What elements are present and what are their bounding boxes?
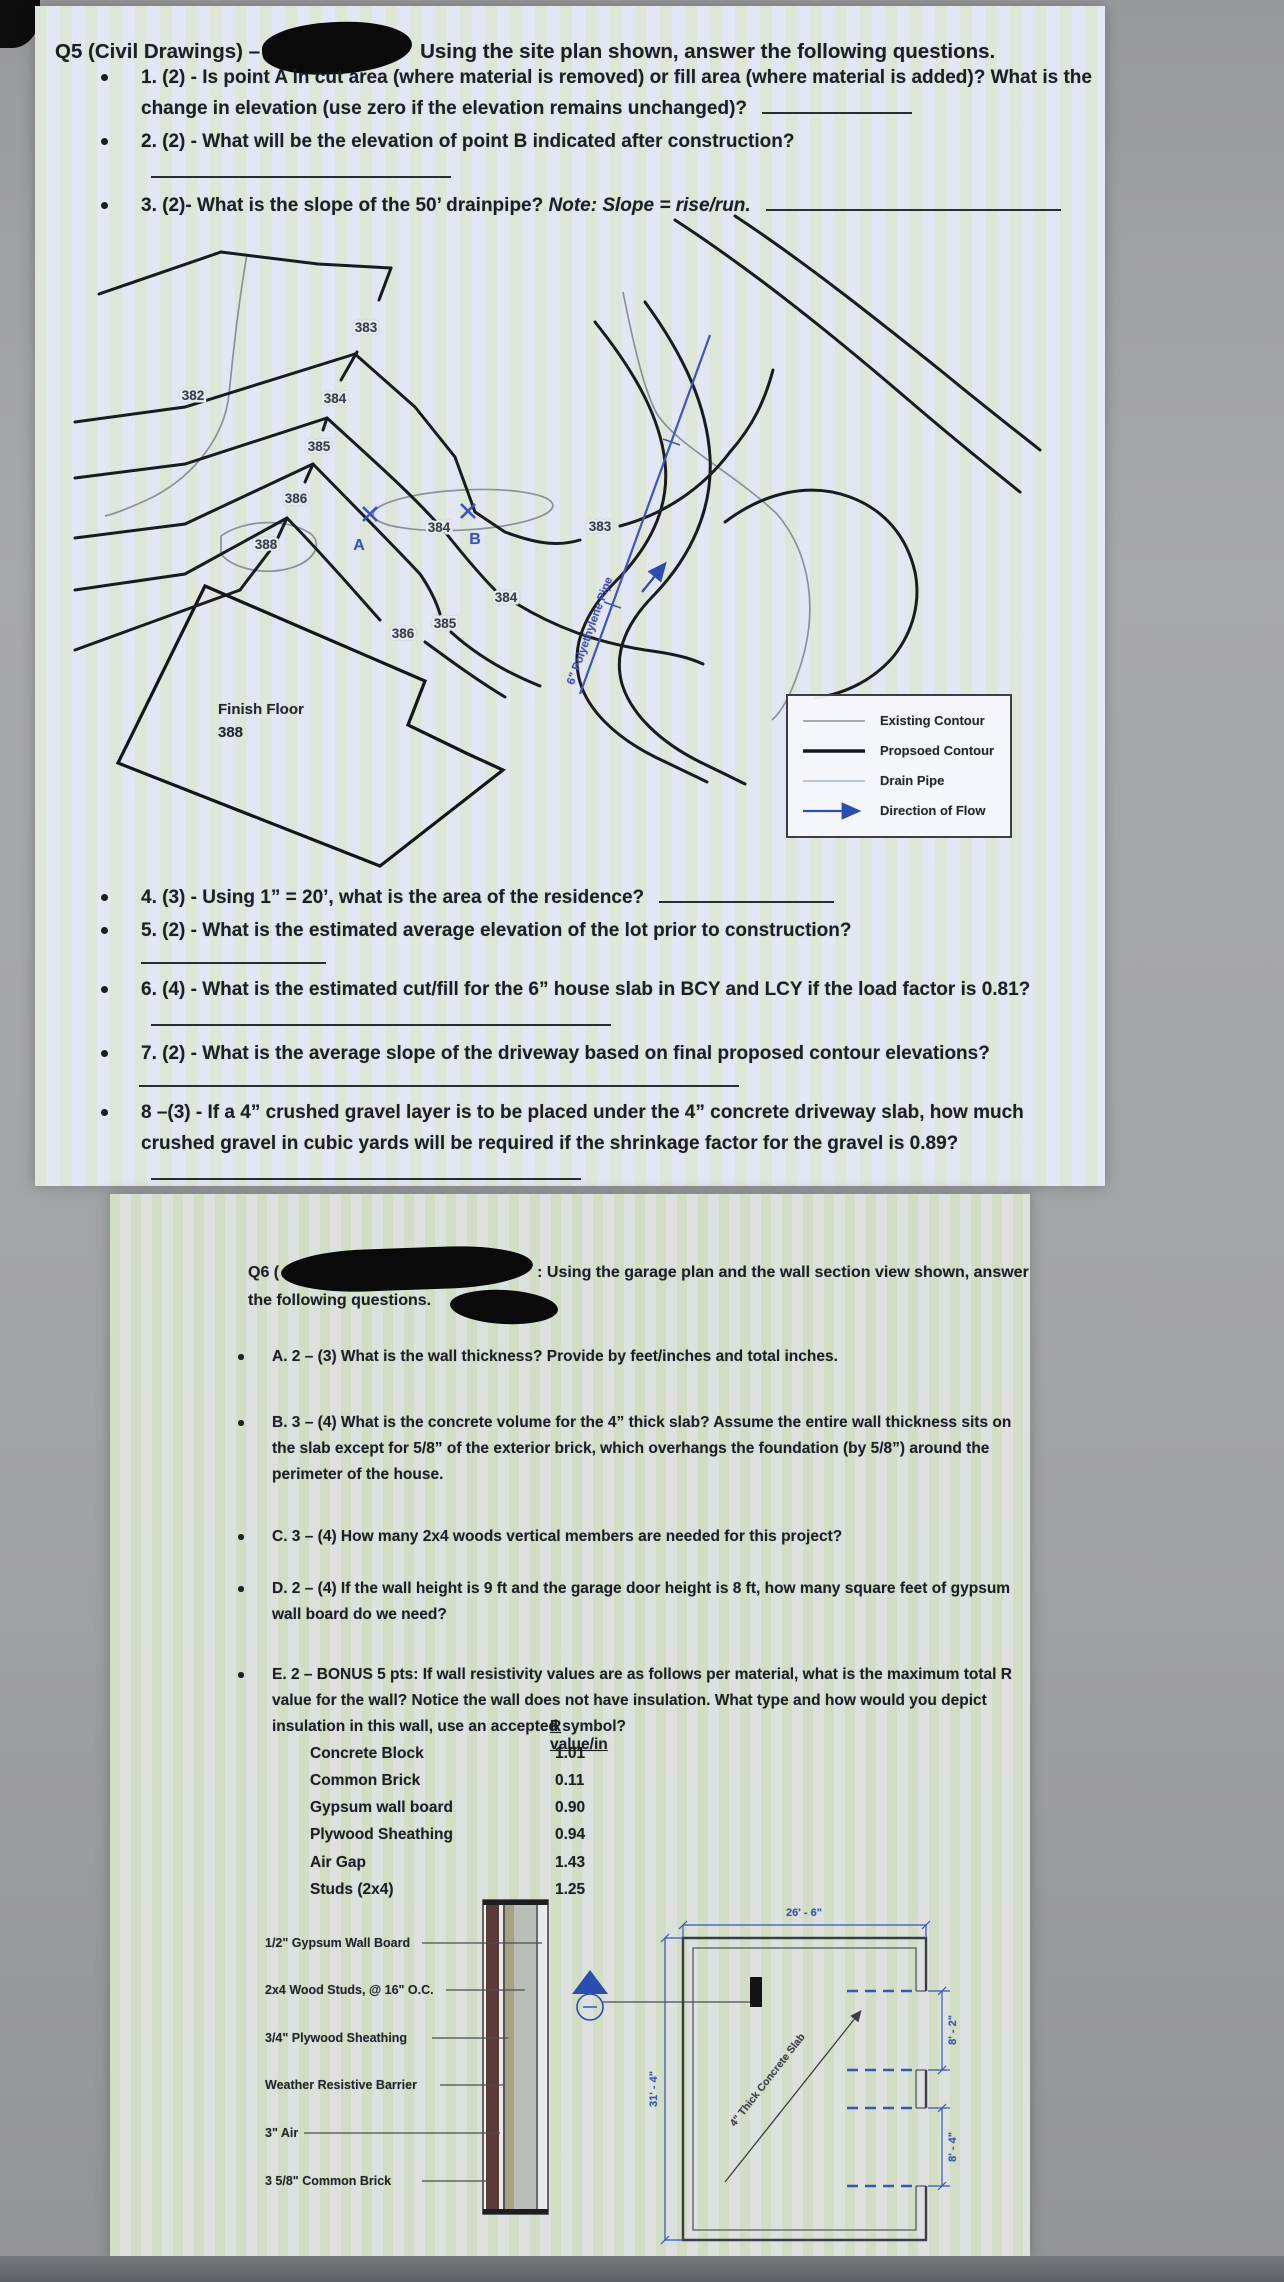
site-plan-drawing: 6" Polyethylene Pipe 383 382 384 385 386… xyxy=(35,202,1045,882)
dimension-lines xyxy=(661,1921,950,2244)
q6-header-prefix: Q6 ( xyxy=(248,1264,279,1281)
q5-page: Q5 (Civil Drawings) –Using the site plan… xyxy=(35,6,1105,1186)
section-callout-icon xyxy=(572,1970,750,2020)
legend-flow-label: Direction of Flow xyxy=(880,803,986,818)
question-d: D. 2 – (4) If the wall height is 9 ft an… xyxy=(228,1576,1018,1628)
question-8-text: 8 –(3) - If a 4” crushed gravel layer is… xyxy=(141,1102,1024,1154)
table-row-value: 0.11 xyxy=(555,1772,584,1790)
q5-questions-4-8: 4. (3) - Using 1” = 20’, what is the are… xyxy=(85,882,1100,1192)
legend-drain-label: Drain Pipe xyxy=(880,773,944,788)
legend-existing-label: Existing Contour xyxy=(880,713,985,728)
question-e: E. 2 – BONUS 5 pts: If wall resistivity … xyxy=(228,1662,1018,1740)
redaction-marker xyxy=(280,1244,533,1295)
question-4-text: 4. (3) - Using 1” = 20’, what is the are… xyxy=(141,887,644,908)
answer-blank xyxy=(659,889,834,903)
q6-questions: A. 2 – (3) What is the wall thickness? P… xyxy=(228,1344,1018,1740)
garage-door-openings xyxy=(847,1991,918,2186)
question-2-text: 2. (2) - What will be the elevation of p… xyxy=(141,131,794,152)
brick-layer xyxy=(486,1904,499,2210)
photographed-document: Q5 (Civil Drawings) –Using the site plan… xyxy=(0,0,1284,2282)
photo-corner-shadow xyxy=(0,0,40,48)
q5-questions-1-3: 1. (2) - Is point A in cut area (where m… xyxy=(85,62,1100,223)
dim-right-bottom-label: 8' - 4" xyxy=(947,2132,959,2162)
section-cut-marker xyxy=(750,1977,762,2007)
question-c: C. 3 – (4) How many 2x4 woods vertical m… xyxy=(228,1524,1018,1550)
driveway-edge-2 xyxy=(619,302,745,784)
question-4: 4. (3) - Using 1” = 20’, what is the are… xyxy=(85,882,1100,913)
q5-title: Q5 (Civil Drawings) –Using the site plan… xyxy=(55,22,1085,67)
question-5: 5. (2) - What is the estimated average e… xyxy=(85,915,1100,964)
question-a-text: A. 2 – (3) What is the wall thickness? P… xyxy=(272,1348,838,1365)
legend: Existing Contour Propsoed Contour Drain … xyxy=(787,695,1011,837)
gypsum-layer xyxy=(538,1904,546,2210)
contour-label-386-right: 386 xyxy=(392,626,415,641)
table-row-material: Plywood Sheathing xyxy=(310,1826,453,1844)
label-air-gap: 3" Air xyxy=(265,2126,298,2140)
answer-blank xyxy=(151,1012,611,1026)
q6-header-suffix: : Using the garage plan and the wall sec… xyxy=(537,1264,1029,1281)
dim-top-label: 26' - 6" xyxy=(786,1907,822,1919)
existing-contours xyxy=(105,254,810,720)
table-row-material: Common Brick xyxy=(310,1772,420,1790)
question-6: 6. (4) - What is the estimated cut/fill … xyxy=(85,974,1100,1036)
finish-floor-label: Finish Floor 388 xyxy=(218,701,304,741)
dim-right-top-label: 8' - 2" xyxy=(947,2015,959,2045)
finish-floor-line1: Finish Floor xyxy=(218,701,304,718)
question-c-text: C. 3 – (4) How many 2x4 woods vertical m… xyxy=(272,1528,842,1545)
wall-labels: 1/2" Gypsum Wall Board 2x4 Wood Studs, @… xyxy=(265,1936,434,2188)
contour-label-385: 385 xyxy=(308,439,331,454)
label-gypsum-board: 1/2" Gypsum Wall Board xyxy=(265,1936,410,1950)
contour-label-383-mid: 383 xyxy=(589,519,612,534)
contour-label-384-b: 384 xyxy=(428,520,451,535)
question-5-text: 5. (2) - What is the estimated average e… xyxy=(141,920,852,941)
q5-title-suffix: Using the site plan shown, answer the fo… xyxy=(420,40,995,63)
site-plan-figure: 6" Polyethylene Pipe 383 382 384 385 386… xyxy=(35,202,1045,882)
finish-floor-line2: 388 xyxy=(218,724,243,741)
answer-blank xyxy=(141,952,326,964)
question-8: 8 –(3) - If a 4” crushed gravel layer is… xyxy=(85,1097,1100,1190)
question-b: B. 3 – (4) What is the concrete volume f… xyxy=(228,1410,1018,1488)
question-e-text: E. 2 – BONUS 5 pts: If wall resistivity … xyxy=(272,1666,1012,1735)
contour-label-386: 386 xyxy=(285,491,308,506)
question-7: 7. (2) - What is the average slope of th… xyxy=(85,1038,1100,1087)
point-a-label: A xyxy=(353,537,365,554)
contour-label-385-right: 385 xyxy=(434,616,457,631)
dimension-labels: 26' - 6" 31' - 4" 8' - 2" 8' - 4" xyxy=(648,1907,959,2162)
contour-label-384: 384 xyxy=(324,391,347,406)
table-row-value: 0.94 xyxy=(555,1826,585,1844)
question-d-text: D. 2 – (4) If the wall height is 9 ft an… xyxy=(272,1580,1010,1623)
garage-plan: 4" Thick Concrete Slab xyxy=(648,1907,959,2244)
stud-layer xyxy=(514,1904,536,2210)
table-row-material: Air Gap xyxy=(310,1854,366,1872)
answer-blank xyxy=(151,1166,581,1180)
contour-label-383-top: 383 xyxy=(355,320,378,335)
question-1: 1. (2) - Is point A in cut area (where m… xyxy=(85,62,1100,124)
point-b-label: B xyxy=(469,531,481,548)
slab-label: 4" Thick Concrete Slab xyxy=(728,2031,808,2129)
q6-header: Q6 (: Using the garage plan and the wall… xyxy=(248,1248,1038,1315)
q6-header-line2: the following questions. xyxy=(248,1292,431,1309)
q6-figure-drawing: 1/2" Gypsum Wall Board 2x4 Wood Studs, @… xyxy=(250,1894,1030,2254)
question-6-text: 6. (4) - What is the estimated cut/fill … xyxy=(141,979,1030,1000)
q5-title-prefix: Q5 (Civil Drawings) – xyxy=(55,40,260,63)
table-row-value: 0.90 xyxy=(555,1799,585,1817)
table-row-value: 1.01 xyxy=(555,1745,585,1763)
question-7-text: 7. (2) - What is the average slope of th… xyxy=(141,1043,990,1064)
question-1-text: 1. (2) - Is point A in cut area (where m… xyxy=(141,67,1092,119)
contour-label-382: 382 xyxy=(182,388,205,403)
wall-section-and-garage-plan: 1/2" Gypsum Wall Board 2x4 Wood Studs, @… xyxy=(250,1894,1030,2254)
label-plywood-sheathing: 3/4" Plywood Sheathing xyxy=(265,2031,407,2045)
q6-page: Q6 (: Using the garage plan and the wall… xyxy=(110,1194,1030,2258)
label-common-brick: 3 5/8" Common Brick xyxy=(265,2174,391,2188)
table-row-material: Concrete Block xyxy=(310,1745,424,1763)
dim-left-label: 31' - 4" xyxy=(648,2071,660,2107)
table-row-material: Gypsum wall board xyxy=(310,1799,453,1817)
legend-proposed-label: Propsoed Contour xyxy=(880,743,994,758)
wall-section xyxy=(483,1900,548,2214)
table-row-value: 1.43 xyxy=(555,1854,585,1872)
contour-label-384-right: 384 xyxy=(495,590,518,605)
answer-blank xyxy=(139,1075,739,1087)
label-wood-studs: 2x4 Wood Studs, @ 16" O.C. xyxy=(265,1983,434,1997)
question-a: A. 2 – (3) What is the wall thickness? P… xyxy=(228,1344,1018,1370)
plywood-layer xyxy=(505,1904,514,2210)
point-a-marker xyxy=(363,507,377,521)
contour-label-388: 388 xyxy=(255,537,278,552)
point-b-marker xyxy=(461,504,475,518)
question-2: 2. (2) - What will be the elevation of p… xyxy=(85,126,1100,188)
photo-bottom-shadow xyxy=(0,2256,1284,2282)
question-b-text: B. 3 – (4) What is the concrete volume f… xyxy=(272,1414,1011,1483)
label-weather-barrier: Weather Resistive Barrier xyxy=(265,2078,417,2092)
answer-blank xyxy=(762,100,912,114)
drain-pipe: 6" Polyethylene Pipe xyxy=(565,335,710,694)
answer-blank xyxy=(151,164,451,178)
